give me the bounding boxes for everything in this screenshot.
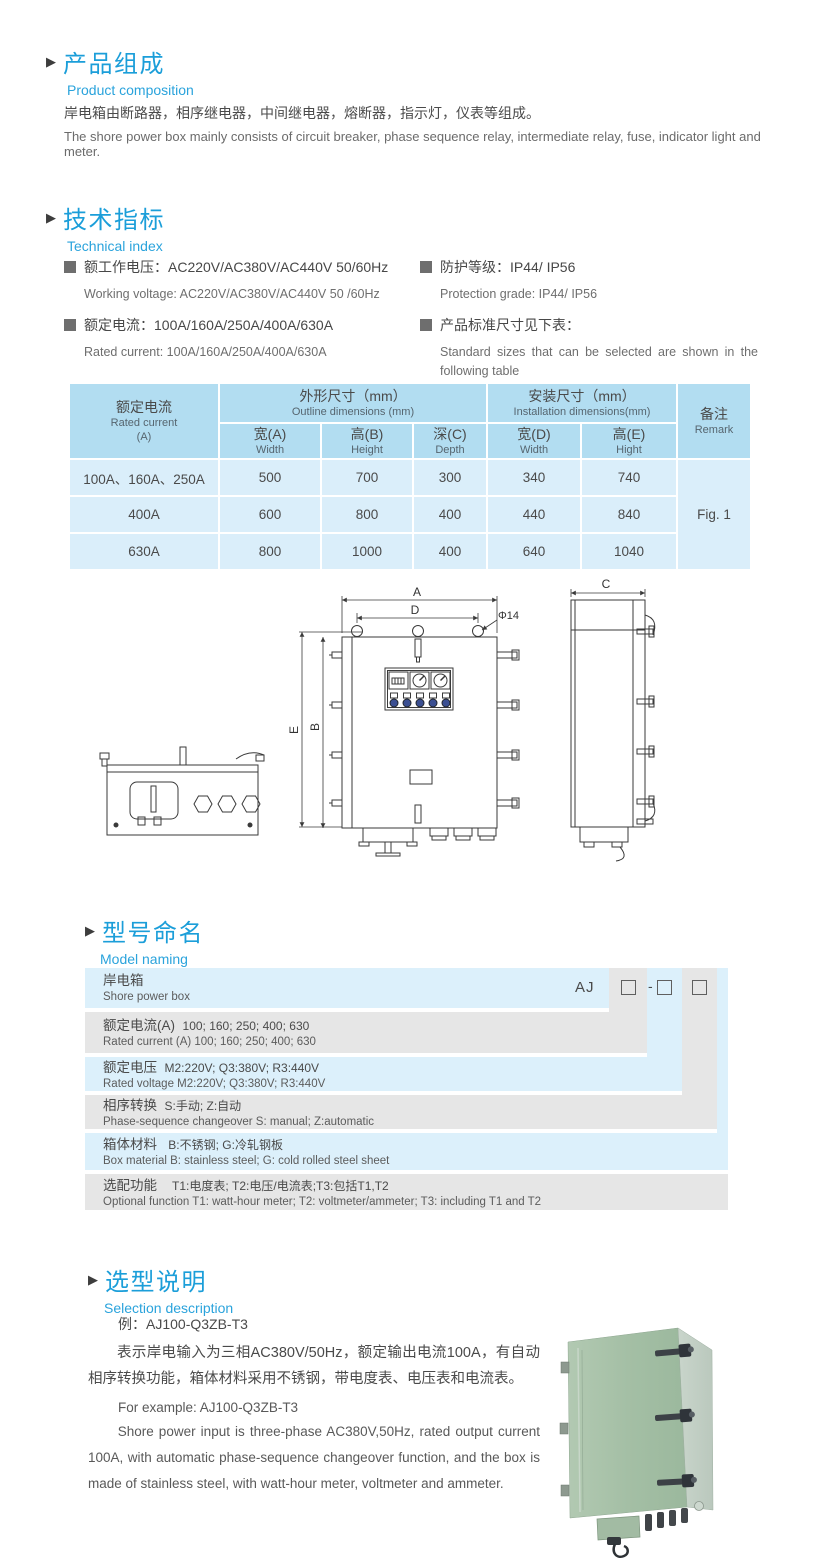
header-en: Remark <box>678 423 750 437</box>
dim-label-b: B <box>308 723 322 731</box>
spec-en-text: Protection grade: IP44/ IP56 <box>440 285 756 304</box>
dimensions-table: 额定电流 Rated current (A) 外形尺寸（mm） Outline … <box>68 382 752 571</box>
spec-standard-sizes: 产品标准尺寸见下表： Standard sizes that can be se… <box>420 315 764 381</box>
header-cn: 备注 <box>678 405 750 423</box>
square-bullet-icon <box>64 261 76 273</box>
front-enclosure-outline <box>342 637 497 828</box>
subheader-width-a: 宽(A)Width <box>219 423 321 459</box>
header-rated-current: 额定电流 Rated current (A) <box>69 383 219 459</box>
spec-column-right: 防护等级：IP44/ IP56 Protection grade: IP44/ … <box>420 257 764 392</box>
section-header-selection-description: ▶ 选型说明 Selection description <box>88 1262 233 1316</box>
square-bullet-icon <box>420 319 432 331</box>
row-label: 630A <box>69 533 219 570</box>
selection-text-block: 例：AJ100-Q3ZB-T3 表示岸电输入为三相AC380V/50Hz，额定输… <box>88 1314 540 1497</box>
cell-value: 840 <box>581 496 677 533</box>
side-enclosure-outline <box>571 600 645 827</box>
photo-hinges <box>560 1362 569 1496</box>
spec-en-text: Rated current: 100A/160A/250A/400A/630A <box>84 343 412 362</box>
side-view <box>571 600 655 861</box>
hinge-column <box>329 652 342 806</box>
bottom-view <box>100 747 264 835</box>
cell-value: 600 <box>219 496 321 533</box>
section-title-en: Model naming <box>100 951 204 967</box>
bottom-handle <box>236 753 264 759</box>
dim-label-c: C <box>602 577 611 591</box>
selection-example-cn: 例：AJ100-Q3ZB-T3 <box>88 1314 540 1334</box>
cell-value: 400 <box>413 496 487 533</box>
section-marker-icon: ▶ <box>46 55 56 68</box>
dim-label-e: E <box>287 726 301 734</box>
bottom-flange <box>359 828 417 856</box>
model-row-text: 额定电流(A) 100; 160; 250; 400; 630 Rated cu… <box>103 1017 316 1050</box>
top-bolt-tip <box>417 657 420 662</box>
cell-value: 1040 <box>581 533 677 570</box>
section-title-en: Product composition <box>67 82 194 98</box>
cell-value: 400 <box>413 533 487 570</box>
section-header-product-composition: ▶ 产品组成 Product composition <box>46 44 194 98</box>
technical-drawing: A D Φ14 E B <box>60 575 780 875</box>
section-title-cn: 选型说明 <box>105 1262 207 1297</box>
drain-hook <box>614 1544 628 1557</box>
meter-panel <box>385 668 453 710</box>
composition-paragraph-cn: 岸电箱由断路器，相序继电器，中间继电器，熔断器，指示灯，仪表等组成。 <box>64 103 784 123</box>
screw-dot <box>248 823 252 827</box>
model-row-text: 额定电压 M2:220V; Q3:380V; R3:440V Rated vol… <box>103 1059 325 1092</box>
cell-value: 300 <box>413 459 487 496</box>
spec-cn-text: 额定电流：100A/160A/250A/400A/630A <box>84 315 333 335</box>
cell-value: 340 <box>487 459 581 496</box>
spec-cn-text: 额工作电压：AC220V/AC380V/AC440V 50/60Hz <box>84 257 388 277</box>
dim-label-a: A <box>413 585 421 599</box>
product-photo <box>545 1300 800 1565</box>
cell-value: 800 <box>321 496 413 533</box>
subheader-height-b: 高(B)Height <box>321 423 413 459</box>
table-row: 630A 800 1000 400 640 1040 <box>69 533 751 570</box>
row-label: 400A <box>69 496 219 533</box>
cell-value: 440 <box>487 496 581 533</box>
subheader-depth-c: 深(C)Depth <box>413 423 487 459</box>
hex-glands <box>194 796 260 812</box>
model-row-text: 箱体材料 B:不锈钢; G:冷轧钢板 Box material B: stain… <box>103 1136 389 1169</box>
model-row-text: 相序转换 S:手动; Z:自动 Phase-sequence changeove… <box>103 1097 374 1130</box>
subheader-width-d: 宽(D)Width <box>487 423 581 459</box>
section-header-model-naming: ▶ 型号命名 Model naming <box>85 913 204 967</box>
selection-example-en: For example: AJ100-Q3ZB-T3 <box>88 1400 540 1415</box>
spec-list: 额工作电压：AC220V/AC380V/AC440V 50/60Hz Worki… <box>64 257 774 392</box>
section-marker-icon: ▶ <box>46 211 56 224</box>
spec-column-left: 额工作电压：AC220V/AC380V/AC440V 50/60Hz Worki… <box>64 257 420 392</box>
subheader-height-e: 高(E)Hight <box>581 423 677 459</box>
screw-dot <box>114 823 118 827</box>
header-unit: (A) <box>70 430 218 444</box>
top-bolt <box>415 639 421 657</box>
header-installation-dimensions: 安装尺寸（mm） Installation dimensions(mm) <box>487 383 677 423</box>
model-prefix: AJ <box>575 979 595 996</box>
spec-cn-text: 产品标准尺寸见下表： <box>440 315 580 335</box>
spec-working-voltage: 额工作电压：AC220V/AC380V/AC440V 50/60Hz Worki… <box>64 257 420 304</box>
cell-value: 640 <box>487 533 581 570</box>
model-naming-diagram: AJ - 岸电箱 Shore power box 额定电流(A) 100; 16… <box>85 968 743 1210</box>
dim-label-phi14: Φ14 <box>498 610 519 622</box>
header-outline-dimensions: 外形尺寸（mm） Outline dimensions (mm) <box>219 383 487 423</box>
section-marker-icon: ▶ <box>85 924 95 937</box>
box-front-face <box>568 1328 687 1518</box>
header-en: Rated current <box>70 416 218 430</box>
table-row: 100A、160A、250A 500 700 300 340 740 Fig. … <box>69 459 751 496</box>
table-row: 400A 600 800 400 440 840 <box>69 496 751 533</box>
mounting-ear <box>413 626 424 637</box>
mounting-ear <box>473 626 484 637</box>
section-marker-icon: ▶ <box>88 1273 98 1286</box>
model-code-box-2 <box>657 980 672 995</box>
selection-description-en: Shore power input is three-phase AC380V,… <box>88 1419 540 1497</box>
mounting-ear <box>352 626 363 637</box>
model-code-minus: - <box>648 978 653 994</box>
front-view <box>329 626 519 857</box>
cell-value: 740 <box>581 459 677 496</box>
spec-en-text: Working voltage: AC220V/AC380V/AC440V 50… <box>84 285 412 304</box>
section-title-cn: 型号命名 <box>102 913 204 948</box>
spec-en-text: Standard sizes that can be selected are … <box>440 343 758 381</box>
model-code-box-1 <box>621 980 636 995</box>
header-remark: 备注 Remark <box>677 383 751 459</box>
section-title-en: Technical index <box>67 238 165 254</box>
header-cn: 外形尺寸（mm） <box>220 387 486 405</box>
model-row-text: 岸电箱 Shore power box <box>103 972 190 1005</box>
model-row-text: 选配功能 T1:电度表; T2:电压/电流表;T3:包括T1,T2 Option… <box>103 1177 541 1210</box>
section-title-cn: 产品组成 <box>63 44 165 79</box>
front-dimensions <box>299 596 497 828</box>
section-title-cn: 技术指标 <box>63 200 165 235</box>
square-bullet-icon <box>420 261 432 273</box>
selection-description-cn: 表示岸电输入为三相AC380V/50Hz，额定输出电流100A，有自动相序转换功… <box>88 1340 540 1392</box>
cable-glands <box>430 828 496 840</box>
bottom-bolt <box>415 805 421 823</box>
latch-column <box>497 650 519 808</box>
composition-paragraph-en: The shore power box mainly consists of c… <box>64 129 784 159</box>
cell-remark: Fig. 1 <box>677 459 751 570</box>
side-latches <box>637 615 655 824</box>
section-header-technical-index: ▶ 技术指标 Technical index <box>46 200 165 254</box>
spec-rated-current: 额定电流：100A/160A/250A/400A/630A Rated curr… <box>64 315 420 362</box>
gasket-panel <box>130 782 178 819</box>
header-en: Installation dimensions(mm) <box>488 405 676 419</box>
spec-protection-grade: 防护等级：IP44/ IP56 Protection grade: IP44/ … <box>420 257 764 304</box>
row-label: 100A、160A、250A <box>69 459 219 496</box>
header-cn: 安装尺寸（mm） <box>488 387 676 405</box>
cell-value: 800 <box>219 533 321 570</box>
cell-value: 500 <box>219 459 321 496</box>
square-bullet-icon <box>64 319 76 331</box>
dim-label-d: D <box>411 603 420 617</box>
indicator-lights <box>390 693 450 707</box>
header-cn: 额定电流 <box>70 398 218 416</box>
header-en: Outline dimensions (mm) <box>220 405 486 419</box>
cell-value: 1000 <box>321 533 413 570</box>
side-bottom-gland <box>580 827 628 861</box>
cell-value: 700 <box>321 459 413 496</box>
nameplate <box>410 770 432 784</box>
phi-leader-line <box>482 620 497 630</box>
catalog-page: ▶ 产品组成 Product composition 岸电箱由断路器，相序继电器… <box>0 0 830 1568</box>
model-code-box-3 <box>692 980 707 995</box>
spec-cn-text: 防护等级：IP44/ IP56 <box>440 257 575 277</box>
